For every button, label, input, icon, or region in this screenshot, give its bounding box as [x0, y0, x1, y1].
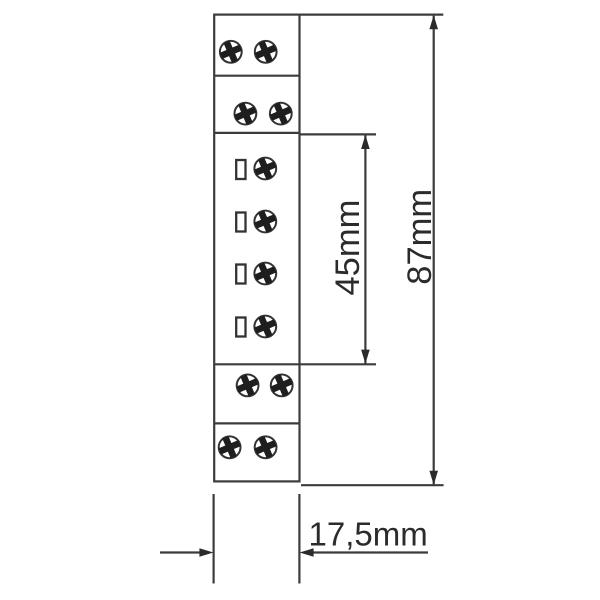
svg-text:87mm: 87mm	[401, 189, 439, 285]
svg-text:45mm: 45mm	[329, 200, 367, 296]
svg-text:17,5mm: 17,5mm	[309, 516, 428, 553]
